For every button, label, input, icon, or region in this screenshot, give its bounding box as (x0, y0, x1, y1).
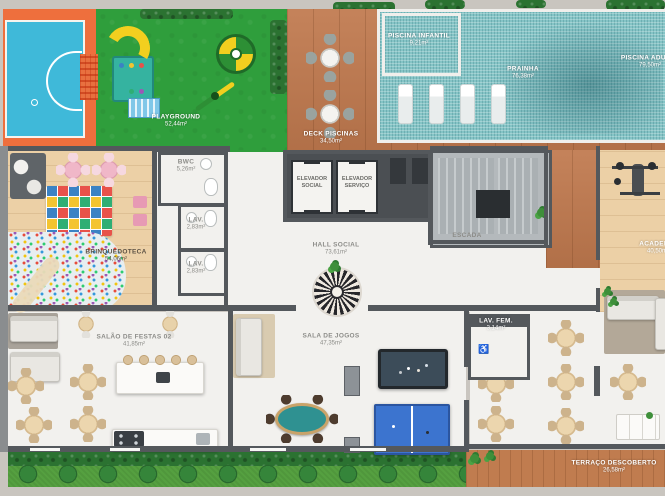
lav-fem-label: LAV. FEM. 3,14m² (479, 318, 513, 333)
piscina-adulto-label: PISCINA ADULTO 79,50m² (621, 55, 665, 70)
wheelchair-accessibility-icon: ♿ (478, 344, 489, 355)
piscina-infantil-area: 9,21m² (388, 40, 450, 47)
billiards-table (378, 349, 448, 389)
in-pool-lounger (398, 84, 413, 124)
window (110, 448, 140, 451)
exterior-wall (466, 444, 665, 449)
sofa (10, 316, 58, 342)
wall (594, 366, 600, 396)
wall (224, 146, 228, 308)
terraco-name: TERRAÇO DESCOBERTO (571, 460, 656, 468)
wall (368, 305, 468, 311)
hall-floor-medallion (312, 267, 362, 317)
prainha-label: PRAINHA 76,38m² (507, 66, 539, 81)
party-table (8, 368, 44, 404)
plant (486, 452, 494, 460)
lav2-name: LAV. (187, 261, 206, 269)
wall (466, 305, 598, 311)
academia-area: 40,50m² (639, 248, 665, 255)
bar-stools (120, 355, 200, 365)
party-table (16, 407, 52, 443)
bwc-name: BWC (177, 159, 196, 167)
in-pool-lounger (429, 84, 444, 124)
deck-piscinas-label: DECK PISCINAS 34,50m² (304, 131, 359, 146)
prainha-area: 76,38m² (507, 73, 539, 80)
playground-label: PLAYGROUND 52,44m² (152, 114, 201, 129)
hall-social-area: 73,61m² (313, 249, 360, 256)
plant (470, 454, 479, 463)
deck-table (306, 34, 354, 82)
lav-toilet (204, 254, 217, 271)
lav-fem-name: LAV. FEM. (479, 318, 513, 326)
salao-festas-label: SALÃO DE FESTAS 02 41,85m² (97, 334, 172, 349)
stove (114, 431, 144, 447)
wall (428, 150, 432, 245)
salao-festas-area: 41,85m² (97, 341, 172, 348)
window (350, 448, 386, 451)
piscina-adulto-name: PISCINA ADULTO (621, 55, 665, 63)
brinquedoteca-label: BRINQUEDOTECA 54,06m² (85, 249, 146, 264)
lav1-name: LAV. (187, 217, 206, 225)
wall (596, 146, 600, 260)
elevator-social-name: ELEVADOR (293, 176, 331, 183)
toy-shelf (133, 196, 147, 208)
deck-piscinas-area: 34,50m² (304, 138, 359, 145)
elevator-service-label: ELEVADOR SERVIÇO (338, 176, 376, 190)
hall-social-name: HALL SOCIAL (313, 242, 360, 250)
buffet-cabinet (616, 414, 660, 440)
service-hall-fixture (412, 158, 428, 184)
in-pool-lounger (491, 84, 506, 124)
east-wood-corridor (546, 150, 600, 268)
terraco-area: 26,58m² (571, 467, 656, 474)
wall (544, 146, 548, 246)
lav-fem-area: 3,14m² (479, 325, 513, 332)
plant (330, 262, 339, 271)
hedge (425, 0, 465, 9)
academia-name: ACADEMIA (639, 241, 665, 249)
plant (604, 288, 611, 295)
exterior-wall (8, 446, 468, 452)
hall-corridor (228, 152, 285, 222)
left-exterior-wall (0, 146, 8, 452)
brinquedoteca-name: BRINQUEDOTECA (85, 249, 146, 257)
elevator-social-car: ELEVADOR SOCIAL (291, 160, 333, 214)
barbell-plate (648, 162, 656, 170)
sala-jogos-label: SALA DE JOGOS 47,35m² (302, 333, 359, 348)
court-bleacher (80, 54, 98, 100)
wall (8, 305, 232, 311)
window (250, 448, 286, 451)
sala-jogos-name: SALA DE JOGOS (302, 333, 359, 341)
playground-seesaw (192, 82, 238, 114)
salao-festas-name: SALÃO DE FESTAS 02 (97, 334, 172, 342)
deck-piscinas-name: DECK PISCINAS (304, 131, 359, 139)
alphabet-play-mat (46, 186, 112, 236)
prainha-name: PRAINHA (507, 66, 539, 74)
lav1-label: LAV. 2,83m² (187, 217, 206, 232)
wall (228, 305, 233, 452)
column (344, 366, 360, 396)
elevator-social-label: ELEVADOR SOCIAL (293, 176, 331, 190)
barbell-bar (620, 192, 660, 195)
lav1-area: 2,83m² (187, 224, 206, 231)
piscina-adulto-area: 79,50m² (621, 62, 665, 69)
terraco-label: TERRAÇO DESCOBERTO 26,58m² (571, 460, 656, 475)
wall (152, 146, 157, 308)
wall (152, 146, 230, 152)
escada-name: ESCADA (452, 232, 481, 240)
kids-table (92, 153, 126, 187)
wall (283, 150, 287, 222)
kids-table (56, 153, 90, 187)
academia-label: ACADEMIA 40,50m² (639, 241, 665, 256)
bwc-toilet (204, 178, 218, 196)
hedge (140, 9, 233, 19)
bwc-label: BWC 5,26m² (177, 159, 196, 174)
elevator-service-car: ELEVADOR SERVIÇO (336, 160, 378, 214)
wall (464, 305, 469, 367)
bwc-sink (200, 158, 212, 170)
barbell-plate (616, 162, 624, 170)
playground-carousel (216, 34, 256, 74)
elevator-social-sub: SOCIAL (293, 183, 331, 190)
court-penalty-mark (31, 99, 38, 106)
wall (8, 146, 156, 151)
elevator-service-sub: SERVIÇO (338, 183, 376, 190)
sala-jogos-area: 47,35m² (302, 340, 359, 347)
bush-row (8, 462, 466, 486)
hall-social-label: HALL SOCIAL 73,61m² (313, 242, 360, 257)
party-table (548, 320, 584, 356)
toy-shelf (133, 214, 147, 226)
in-pool-lounger (460, 84, 475, 124)
party-table (548, 364, 584, 400)
window (30, 448, 60, 451)
service-hall-fixture (390, 158, 406, 184)
tv-console (655, 298, 665, 350)
escada-label: ESCADA (452, 232, 481, 240)
brinquedoteca-area: 54,06m² (85, 256, 146, 263)
card-game-table (266, 395, 338, 443)
party-table (478, 406, 514, 442)
wall (283, 150, 432, 154)
lav2-area: 2,83m² (187, 268, 206, 275)
kitchen-sink (196, 433, 210, 445)
stair-core (476, 190, 510, 218)
bwc-area: 5,26m² (177, 166, 196, 173)
piscina-infantil-label: PISCINA INFANTIL 9,21m² (388, 33, 450, 48)
wall (430, 146, 548, 151)
dumbbell (614, 178, 621, 185)
plan-canvas: ELEVADOR SOCIAL ELEVADOR SERVIÇO (0, 0, 665, 496)
piscina-infantil-name: PISCINA INFANTIL (388, 33, 450, 41)
hedge (270, 20, 287, 94)
lav2-label: LAV. 2,83m² (187, 261, 206, 276)
lav-toilet (204, 210, 217, 227)
wall (430, 240, 548, 244)
wall (232, 305, 296, 311)
kids-play-structure (10, 153, 46, 199)
playground-name: PLAYGROUND (152, 114, 201, 122)
hedge (516, 0, 546, 8)
playground-area: 52,44m² (152, 121, 201, 128)
party-table (548, 408, 584, 444)
wall (283, 218, 432, 222)
plant (610, 298, 617, 305)
party-table (70, 364, 106, 400)
bar-sink (156, 372, 170, 383)
elevator-service-name: ELEVADOR (338, 176, 376, 183)
sofa (236, 318, 262, 376)
party-table (610, 364, 646, 400)
party-table (70, 406, 106, 442)
